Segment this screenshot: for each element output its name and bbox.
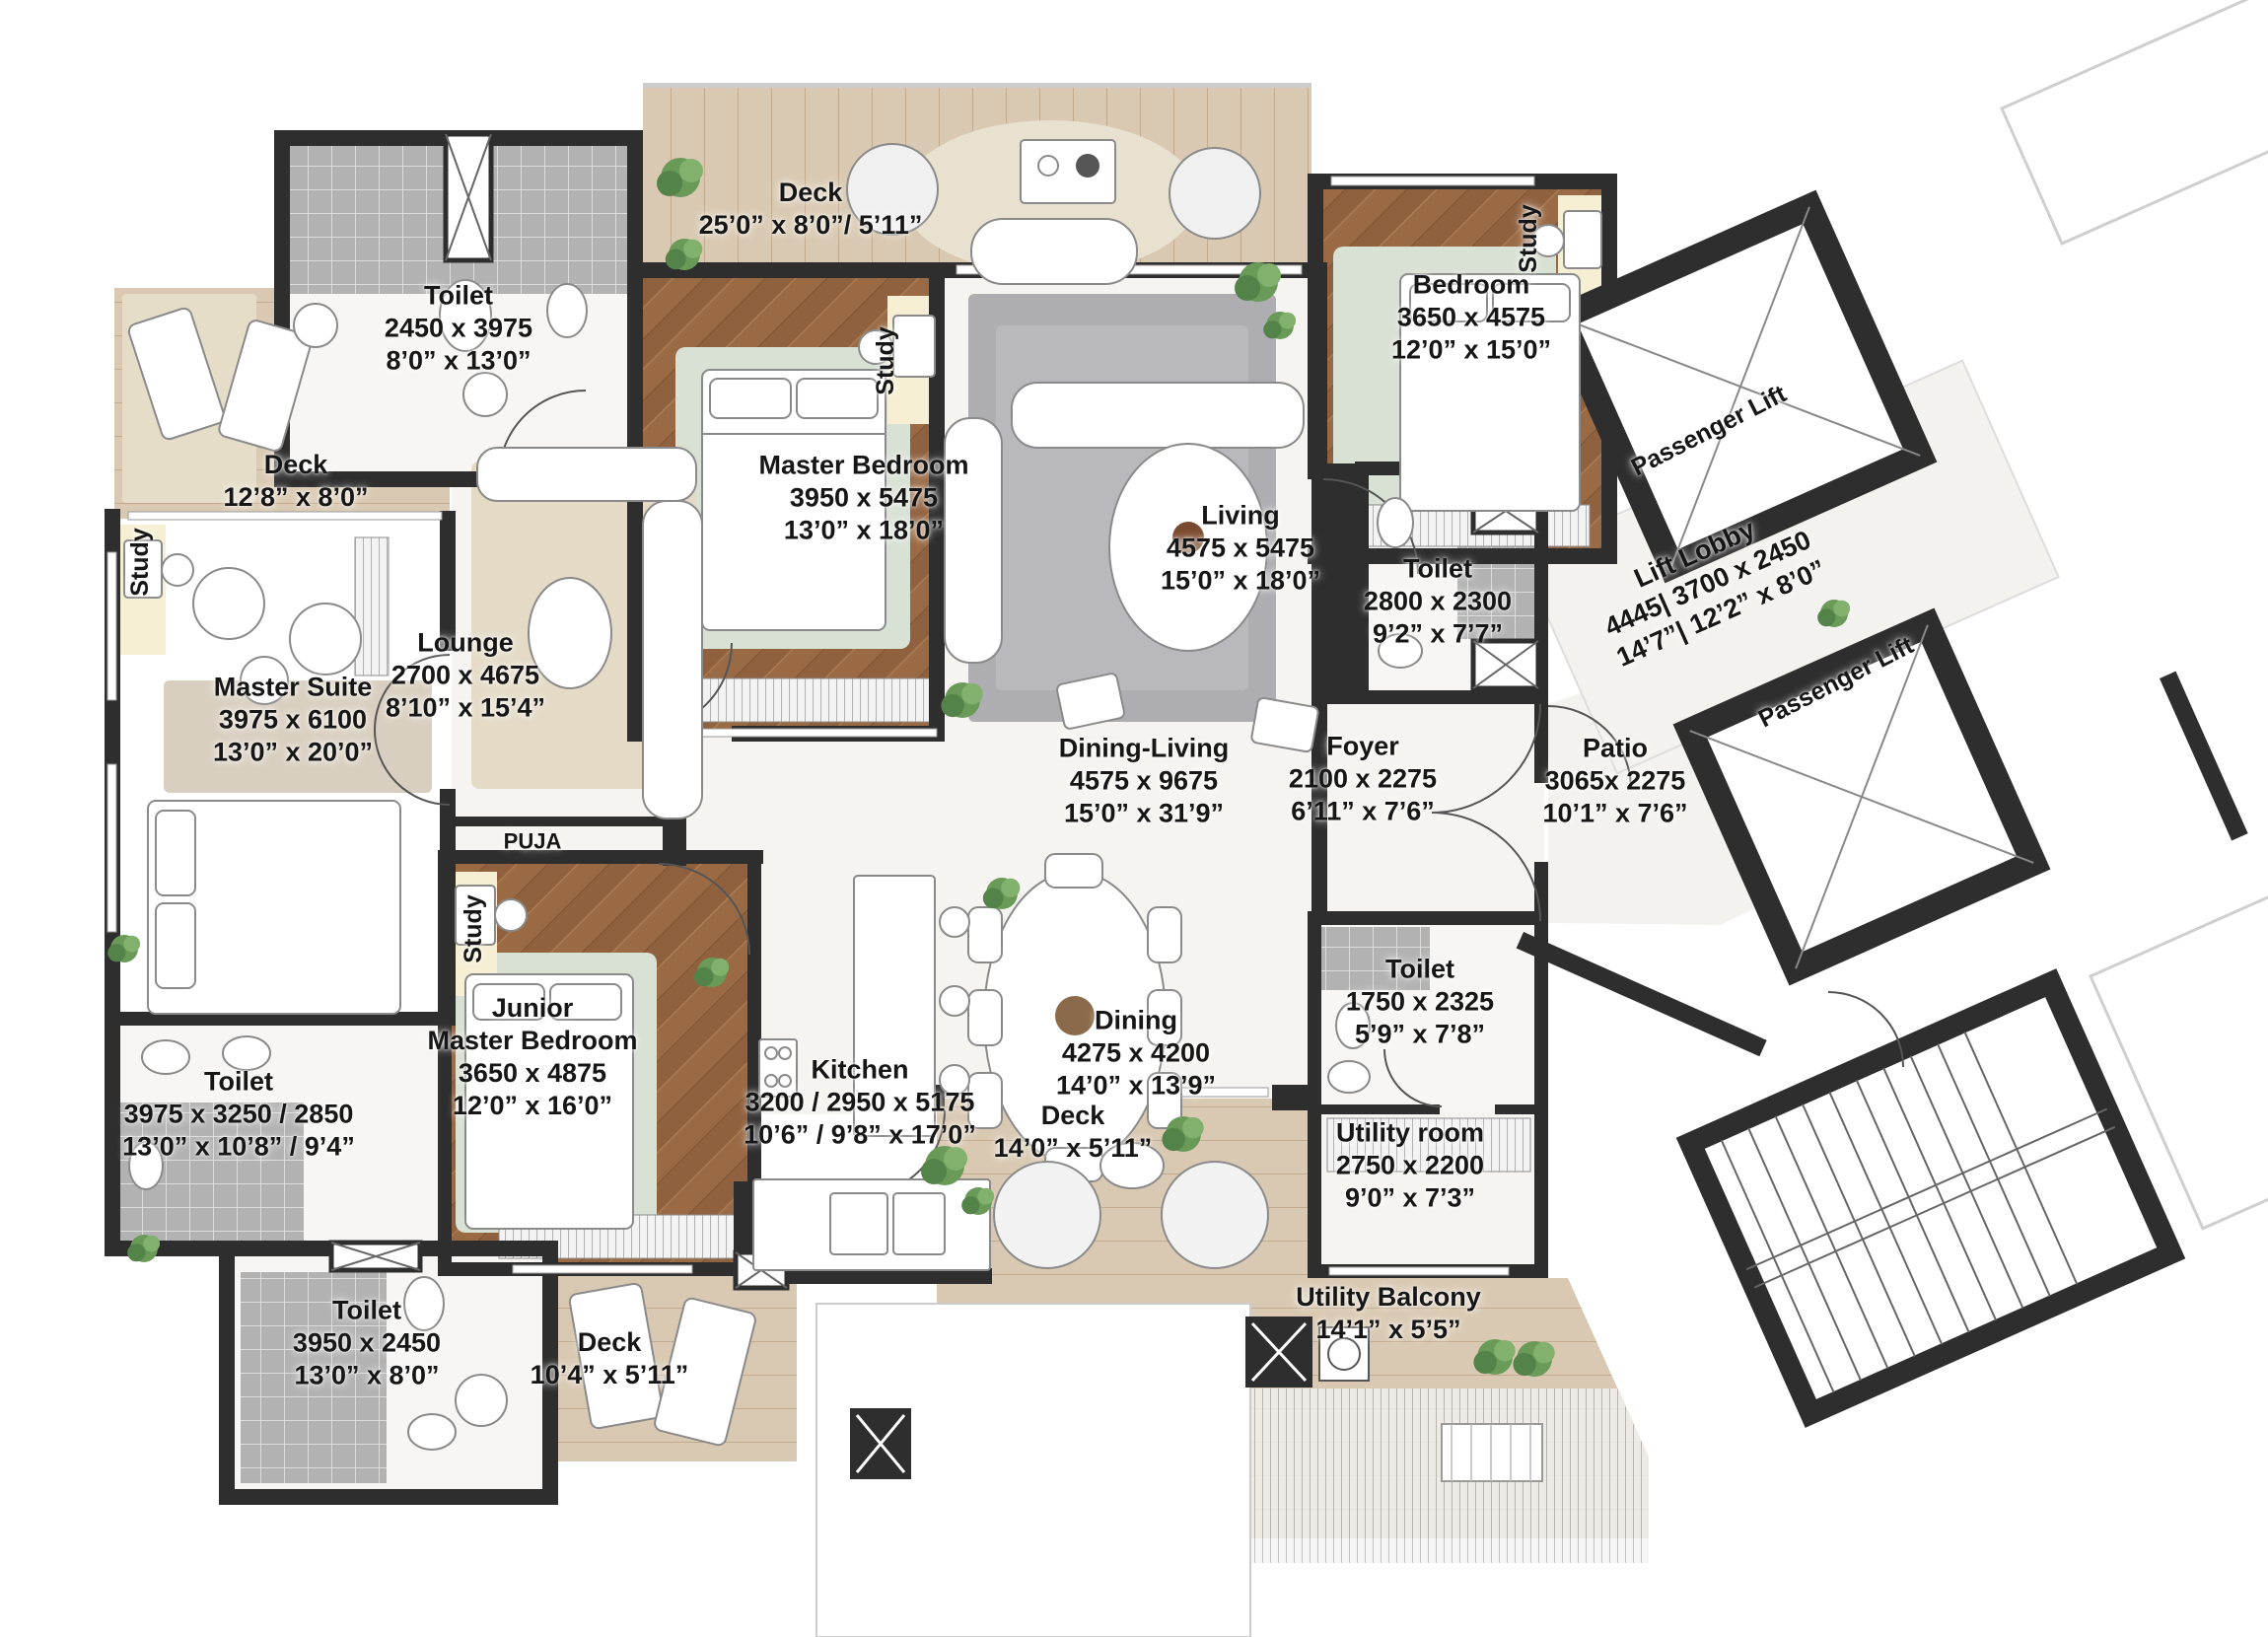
wicker-chair [1162, 1162, 1268, 1268]
label-living: Living 4575 x 5475 15’0” x 18’0” [1161, 500, 1320, 598]
label-study-master-suite: Study [125, 528, 156, 596]
room-name: Toilet [293, 1295, 441, 1327]
stool [940, 986, 969, 1016]
sofa-lounge [643, 501, 702, 818]
room-name: Foyer [1289, 731, 1437, 763]
room-name: Deck [531, 1326, 689, 1359]
room-name: Master Bedroom [758, 450, 968, 482]
room-dims-metric: 3950 x 2450 [293, 1327, 441, 1360]
room-dims-metric: 2750 x 2200 [1336, 1150, 1484, 1182]
room-dims-metric: 2100 x 2275 [1289, 763, 1437, 796]
room-dims-metric: 3650 x 4875 [427, 1057, 637, 1090]
room-name: Toilet [122, 1066, 355, 1099]
label-study-bedroom: Study [1514, 204, 1544, 272]
study-label: Study [1514, 204, 1544, 272]
room-name: Living [1161, 500, 1320, 533]
room-dims-imperial: 12’0” x 15’0” [1391, 333, 1551, 366]
room-name: Deck [223, 449, 368, 481]
label-puja: PUJA [504, 829, 562, 856]
study-label: Study [125, 528, 156, 596]
room-name: Bedroom [1391, 269, 1551, 302]
room-name: Master Suite [213, 672, 373, 704]
room-dims-imperial: 15’0” x 18’0” [1161, 564, 1320, 597]
bed-master-suite [148, 801, 400, 1014]
label-deck-top: Deck 25’0” x 8’0”/ 5’11” [699, 177, 923, 242]
label-master-bedroom: Master Bedroom 3950 x 5475 13’0” x 18’0” [758, 450, 968, 547]
label-patio: Patio 3065x 2275 10’1” x 7’6” [1542, 733, 1687, 830]
room-dims-imperial: 12’0” x 16’0” [427, 1090, 637, 1122]
room-name: Junior [427, 992, 637, 1025]
room-dims-metric: 4275 x 4200 [1056, 1037, 1216, 1070]
room-dims-metric: 3975 x 6100 [213, 704, 373, 737]
label-foyer: Foyer 2100 x 2275 6’11” x 7’6” [1289, 731, 1437, 828]
room-dims-imperial: 8’10” x 15’4” [386, 691, 545, 724]
room-name: Lounge [386, 627, 545, 660]
room-dims-imperial: 9’2” x 7’7” [1364, 617, 1512, 650]
room-dims-metric: 3650 x 4575 [1391, 302, 1551, 334]
stool [940, 907, 969, 937]
side-table [294, 304, 337, 347]
room-dims-imperial: 8’0” x 13’0” [385, 344, 532, 377]
sink-basin [893, 1193, 945, 1254]
sofa-living-horizontal [1012, 383, 1304, 448]
room-dims-imperial: 10’4” x 5’11” [531, 1359, 689, 1391]
label-junior-master-bedroom: Junior Master Bedroom 3650 x 4875 12’0” … [427, 992, 637, 1122]
room-dims-imperial: 15’0” x 31’9” [1059, 797, 1229, 829]
room-name: Toilet [1364, 553, 1512, 586]
room-name: PUJA [504, 829, 562, 856]
room-dims-imperial: 10’1” x 7’6” [1542, 797, 1687, 829]
room-name: Utility room [1336, 1117, 1484, 1150]
armchair [193, 568, 264, 639]
label-lounge: Lounge 2700 x 4675 8’10” x 15’4” [386, 627, 545, 725]
fan-chair [1169, 148, 1260, 239]
study-label: Study [459, 894, 489, 962]
label-toilet-master-suite: Toilet 3975 x 3250 / 2850 13’0” x 10’8” … [122, 1066, 355, 1164]
label-toilet-lower: Toilet 3950 x 2450 13’0” x 8’0” [293, 1295, 441, 1392]
room-name: Dining-Living [1059, 733, 1229, 765]
room-name: Patio [1542, 733, 1687, 765]
label-utility-balcony: Utility Balcony 14’1” x 5’5” [1296, 1281, 1481, 1346]
label-study-junior: Study [459, 894, 489, 962]
room-dims-imperial: 13’0” x 20’0” [213, 736, 373, 768]
deck-table [1021, 140, 1115, 203]
sink-basin [830, 1193, 887, 1254]
room-dims-metric: 3200 / 2950 x 5175 [744, 1087, 976, 1119]
room-dims-imperial: 10’6” / 9’8” x 17’0” [744, 1118, 976, 1151]
room-dims-imperial: 12’8” x 8’0” [223, 481, 368, 514]
room-dims-imperial: 13’0” x 10’8” / 9’4” [122, 1130, 355, 1163]
label-deck-center: Deck 14’0” x 5’11” [994, 1100, 1153, 1165]
room-dims-imperial: 13’0” x 18’0” [758, 514, 968, 546]
room-dims-imperial: 5’9” x 7’8” [1346, 1018, 1494, 1050]
room-dims-imperial: 9’0” x 7’3” [1336, 1181, 1484, 1214]
room-dims-imperial: 13’0” x 8’0” [293, 1359, 441, 1391]
label-toilet-top-left: Toilet 2450 x 3975 8’0” x 13’0” [385, 280, 532, 378]
room-name: Toilet [1346, 954, 1494, 986]
room-dims-metric: 4575 x 9675 [1059, 765, 1229, 798]
study-label: Study [871, 326, 901, 394]
room-name: Deck [994, 1100, 1153, 1132]
room-dims-metric: 1750 x 2325 [1346, 986, 1494, 1019]
label-study-master-bedroom: Study [871, 326, 901, 394]
label-deck-left: Deck 12’8” x 8’0” [223, 449, 368, 514]
room-dims-metric: 2700 x 4675 [386, 660, 545, 692]
room-dims-metric: 3950 x 5475 [758, 482, 968, 515]
room-dims-imperial: 14’0” x 5’11” [994, 1132, 1153, 1165]
room-dims-imperial: 6’11” x 7’6” [1289, 795, 1437, 827]
label-toilet-utility: Toilet 1750 x 2325 5’9” x 7’8” [1346, 954, 1494, 1051]
wicker-chair [994, 1162, 1100, 1268]
armchair [290, 604, 361, 675]
room-name: Kitchen [744, 1054, 976, 1087]
room-name: Dining [1056, 1005, 1216, 1037]
label-utility-room: Utility room 2750 x 2200 9’0” x 7’3” [1336, 1117, 1484, 1215]
label-toilet-bedroom: Toilet 2800 x 2300 9’2” x 7’7” [1364, 553, 1512, 651]
chaise-lounge [477, 448, 696, 501]
room-dims-metric: 2800 x 2300 [1364, 586, 1512, 618]
room-dims-imperial: 25’0” x 8’0”/ 5’11” [699, 209, 923, 242]
room-dims-metric: 3065x 2275 [1542, 765, 1687, 798]
label-bedroom: Bedroom 3650 x 4575 12’0” x 15’0” [1391, 269, 1551, 367]
label-dining: Dining 4275 x 4200 14’0” x 13’9” [1056, 1005, 1216, 1103]
room-name: Deck [699, 177, 923, 209]
room-dims-metric: 3975 x 3250 / 2850 [122, 1099, 355, 1131]
label-deck-lower: Deck 10’4” x 5’11” [531, 1326, 689, 1391]
deck-sofa [971, 219, 1137, 284]
label-kitchen: Kitchen 3200 / 2950 x 5175 10’6” / 9’8” … [744, 1054, 976, 1152]
label-master-suite: Master Suite 3975 x 6100 13’0” x 20’0” [213, 672, 373, 769]
floor-plan: Toilet 2450 x 3975 8’0” x 13’0” Deck 25’… [0, 0, 2268, 1637]
room-dims-metric: 2450 x 3975 [385, 313, 532, 345]
label-dining-living: Dining-Living 4575 x 9675 15’0” x 31’9” [1059, 733, 1229, 830]
room-dims-imperial: 14’1” x 5’5” [1296, 1314, 1481, 1346]
room-dims-metric: 4575 x 5475 [1161, 533, 1320, 565]
room-name: Master Bedroom [427, 1025, 637, 1057]
room-name: Utility Balcony [1296, 1281, 1481, 1314]
room-name: Toilet [385, 280, 532, 313]
room-dims-imperial: 14’0” x 13’9” [1056, 1069, 1216, 1102]
